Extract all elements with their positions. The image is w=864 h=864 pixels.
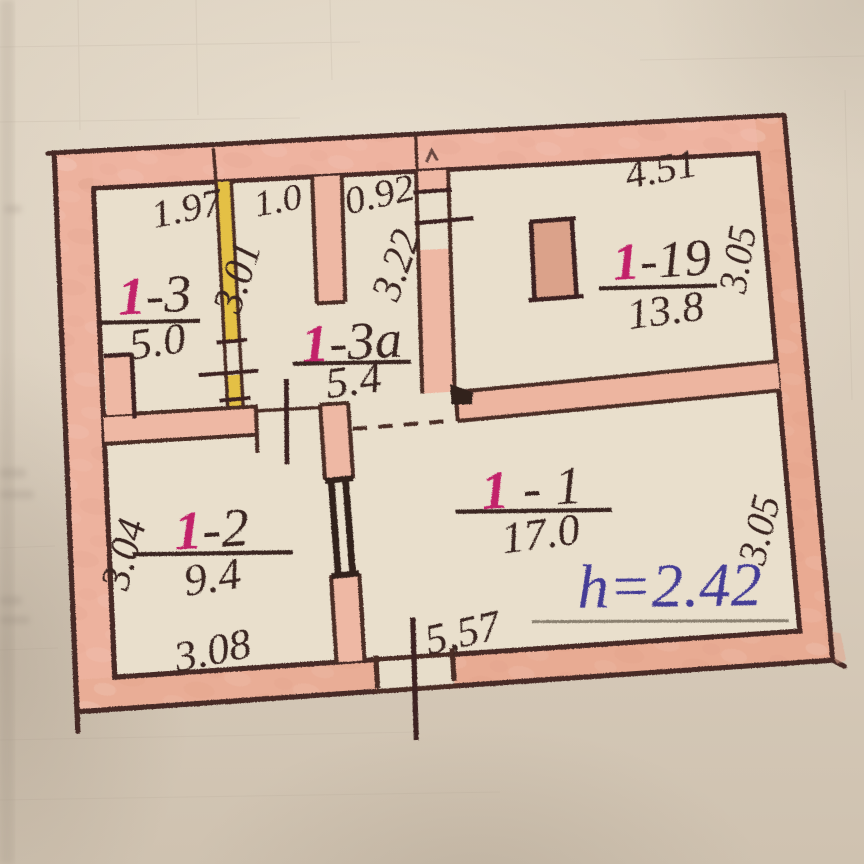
- svg-text:17.0: 17.0: [498, 505, 583, 564]
- svg-text:13.8: 13.8: [624, 283, 708, 339]
- svg-text:9.4: 9.4: [181, 549, 245, 606]
- svg-text:5.4: 5.4: [323, 354, 385, 408]
- svg-text:h=2.42: h=2.42: [577, 550, 763, 622]
- svg-text:5.0: 5.0: [126, 314, 189, 369]
